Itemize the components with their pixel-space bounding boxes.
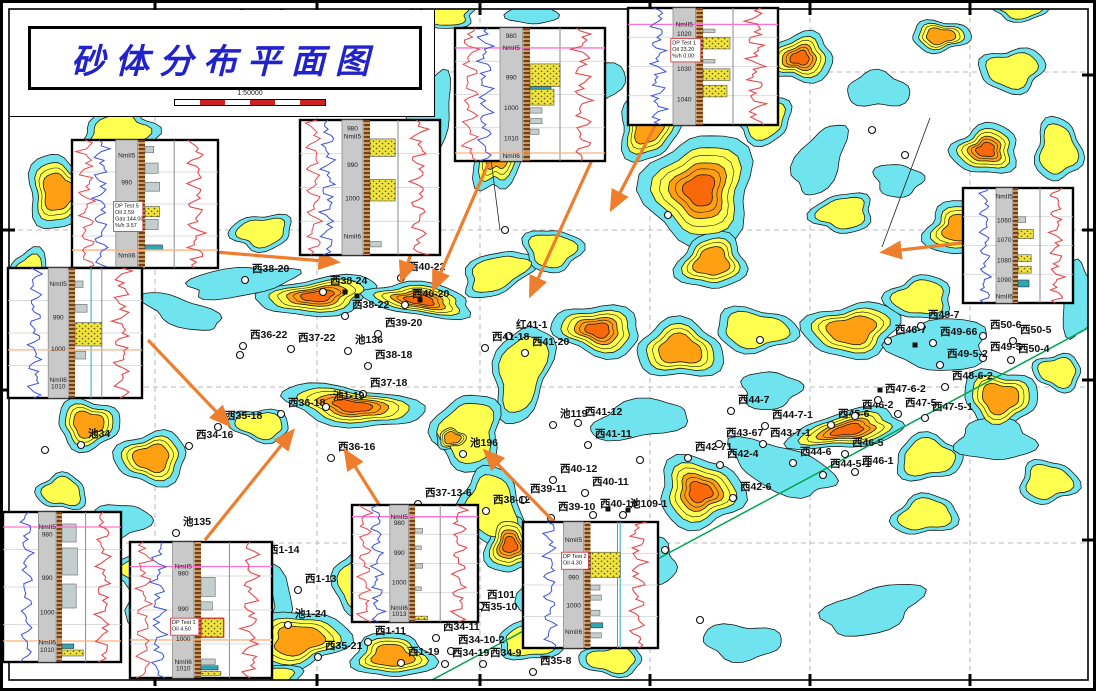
well-label: 西42-4	[727, 448, 759, 460]
well-symbol[interactable]	[728, 408, 735, 415]
sand-bar	[201, 602, 212, 610]
well-symbol[interactable]	[930, 340, 937, 347]
sand-bar	[370, 242, 381, 247]
log-panel[interactable]: 980NmII59901000NmII6	[300, 120, 440, 255]
depth-label: 1000	[51, 346, 66, 353]
well-symbol[interactable]	[918, 323, 925, 330]
sand-bar	[703, 85, 727, 97]
depth-label: NmII5	[39, 524, 57, 531]
well-symbol[interactable]	[365, 363, 372, 370]
frame-tick	[3, 229, 15, 232]
well-label: 西40-20	[412, 288, 450, 300]
depth-label: 1010	[176, 666, 191, 673]
well-symbol[interactable]	[790, 460, 797, 467]
well-label: 西43-7-1	[770, 427, 811, 439]
depth-label: 1013	[392, 611, 407, 618]
well-symbol-filled[interactable]	[913, 343, 918, 348]
well-label: 西101	[487, 589, 515, 601]
well-label: 西50-4	[1018, 343, 1050, 355]
well-symbol[interactable]	[902, 152, 909, 159]
depth-track	[996, 188, 1013, 303]
sand-bar	[530, 129, 539, 134]
depth-label: 1000	[566, 602, 581, 609]
depth-label: 1020	[677, 31, 692, 38]
frame-tick	[479, 3, 482, 15]
well-label: 西46-5	[852, 437, 884, 449]
well-label: 池136	[355, 333, 383, 346]
well-symbol[interactable]	[697, 617, 704, 624]
well-symbol[interactable]	[173, 530, 180, 537]
sand-bar	[703, 37, 730, 49]
test-note-line: Oil 2.59	[115, 210, 134, 216]
well-symbol[interactable]	[575, 420, 582, 427]
sand-bar	[530, 108, 542, 113]
well-label: 西38-18	[375, 349, 413, 361]
depth-label: 980	[178, 570, 189, 577]
well-symbol[interactable]	[665, 212, 672, 219]
log-panel[interactable]: NmII59901000NmII6DP Test 2Oil 4.30	[523, 522, 658, 648]
well-symbol[interactable]	[522, 350, 529, 357]
sand-bar	[1018, 255, 1031, 262]
well-label: 西41-12	[585, 406, 623, 418]
depth-label: 1010	[51, 384, 66, 391]
log-panel[interactable]: NmII59809901000NmII61010DP Test 1Oil 4.5…	[130, 542, 272, 678]
well-symbol[interactable]	[895, 411, 902, 418]
depth-label: NmII6	[118, 252, 136, 259]
depth-label: 1010	[40, 647, 55, 654]
well-symbol[interactable]	[460, 451, 467, 458]
log-panel[interactable]: NmII5990NmII6DP Test 5Oil 2.59Gas:144.00…	[72, 140, 218, 268]
well-label: 池196	[470, 436, 498, 449]
well-symbol[interactable]	[980, 333, 987, 340]
well-label: 西39-10	[558, 501, 596, 513]
well-label: 西38-24	[330, 275, 368, 287]
well-label: 西40-11	[592, 476, 629, 488]
sand-bar	[145, 163, 158, 173]
frame-tick	[1082, 74, 1094, 77]
well-symbol[interactable]	[590, 512, 597, 519]
lithology-column	[409, 505, 415, 622]
sand-bar	[370, 179, 395, 201]
well-label: 西44-6	[800, 446, 832, 458]
log-panel[interactable]: NmII59809901000NmII61010	[3, 512, 121, 662]
depth-label: NmII6	[344, 233, 362, 240]
sand-bar	[62, 584, 76, 608]
sand-bar	[1018, 217, 1026, 223]
well-symbol[interactable]	[550, 422, 557, 429]
frame-tick	[809, 3, 812, 15]
test-note-line: %/h 3.57	[115, 223, 137, 229]
well-label: 西35-18	[225, 410, 263, 422]
sand-bar	[201, 577, 215, 596]
well-symbol[interactable]	[637, 457, 644, 464]
sand-bar	[62, 650, 83, 656]
well-symbol[interactable]	[717, 462, 724, 469]
sand-bar	[703, 29, 715, 33]
well-label: 西41-20	[532, 336, 570, 348]
sand-bar	[201, 618, 224, 637]
depth-label: 1030	[677, 66, 692, 73]
well-symbol[interactable]	[483, 508, 490, 515]
well-symbol[interactable]	[922, 415, 929, 422]
depth-label: 1070	[997, 237, 1012, 244]
depth-label: 990	[53, 315, 64, 322]
depth-label: NmII6	[996, 293, 1014, 300]
well-label: 西41-11	[595, 428, 632, 440]
log-panel[interactable]: 980NmII599010001010NmII6	[455, 28, 605, 161]
depth-label: 990	[347, 162, 358, 169]
log-panel[interactable]: NmII59809901000NmII61013	[352, 505, 478, 622]
well-symbol[interactable]	[442, 661, 449, 668]
depth-label: NmII5	[676, 22, 694, 29]
test-note-line: Oil 4.30	[563, 561, 582, 567]
well-symbol[interactable]	[480, 661, 487, 668]
frame-tick	[649, 674, 652, 686]
depth-label: 990	[178, 606, 189, 613]
well-symbol[interactable]	[842, 451, 849, 458]
well-label: 西48-6-2	[952, 370, 993, 382]
well-label: 西35-10	[480, 601, 518, 613]
well-label: 西34-9	[490, 647, 522, 659]
sand-bar	[591, 633, 602, 638]
well-label: 西38-22	[352, 299, 390, 311]
title-block: 砂体分布平面图 1:50000	[10, 10, 435, 117]
well-symbol[interactable]	[42, 447, 49, 454]
depth-label: 990	[42, 575, 53, 582]
well-symbol[interactable]	[620, 512, 627, 519]
depth-label: 980	[506, 33, 517, 40]
well-label: 西36-22	[250, 329, 288, 341]
well-symbol-filled[interactable]	[355, 294, 360, 299]
well-label: 西44-7-1	[772, 409, 813, 421]
sand-bar	[62, 548, 77, 575]
depth-label: NmII5	[996, 193, 1014, 200]
sand-bar	[530, 87, 551, 90]
well-label: 西42-6	[740, 481, 772, 493]
map-title: 砂体分布平面图	[71, 34, 379, 83]
well-symbol[interactable]	[482, 345, 489, 352]
well-symbol-filled[interactable]	[343, 290, 348, 295]
sand-bar	[415, 587, 421, 591]
well-symbol[interactable]	[530, 669, 537, 676]
well-label: 西34-10-2	[458, 634, 505, 646]
log-panel[interactable]: NmII59901000NmII61010	[8, 268, 142, 398]
well-symbol[interactable]	[585, 442, 592, 449]
well-symbol[interactable]	[402, 302, 409, 309]
scale-bar	[174, 99, 326, 106]
depth-label: NmII5	[503, 45, 521, 52]
well-label: 西37-18	[370, 377, 408, 389]
scale-label: 1:50000	[160, 90, 340, 98]
well-symbol[interactable]	[662, 547, 669, 554]
sand-bar	[1018, 229, 1033, 238]
well-label: 西40-12	[560, 463, 598, 475]
sand-bar	[415, 616, 428, 620]
well-label: 池34	[88, 427, 110, 440]
sand-bar	[703, 59, 715, 63]
sand-bar	[145, 182, 160, 191]
test-note-line: Oil 4.50	[172, 627, 191, 633]
sand-bar	[530, 64, 560, 87]
sand-bar	[591, 595, 602, 600]
depth-label: 990	[394, 550, 405, 557]
test-note-line: Gas:144.00	[115, 216, 143, 222]
well-symbol[interactable]	[242, 277, 249, 284]
test-note-line: DP Test 5	[115, 203, 139, 209]
frame-tick	[1082, 539, 1094, 542]
depth-label: 980	[347, 125, 358, 132]
well-symbol[interactable]	[582, 490, 589, 497]
sand-bar	[201, 671, 221, 675]
depth-label: 1080	[997, 258, 1012, 265]
well-symbol[interactable]	[875, 397, 882, 404]
sand-bar	[201, 666, 218, 670]
map-canvas: 西38-20 西38-24 西38-22 西39-20 西40-22 西40-2…	[0, 0, 1096, 691]
lithology-column	[584, 522, 590, 648]
sand-bar	[75, 281, 83, 288]
sand-bar	[145, 219, 158, 229]
well-label: 池1-24	[295, 607, 327, 620]
frame-tick	[809, 674, 812, 686]
well-label: 西38-20	[252, 263, 290, 275]
lithology-column	[1013, 188, 1018, 303]
frame-tick	[1082, 379, 1094, 382]
depth-label: NmII5	[565, 537, 583, 544]
sand-bar	[703, 69, 730, 81]
well-label: 西49-5-2	[947, 348, 988, 360]
well-symbol[interactable]	[685, 455, 692, 462]
depth-label: NmII5	[344, 133, 362, 140]
well-symbol[interactable]	[716, 441, 723, 448]
well-symbol[interactable]	[852, 469, 859, 476]
sand-bar	[1018, 280, 1029, 287]
well-label: 西37-13-6	[425, 487, 472, 499]
well-symbol[interactable]	[342, 313, 349, 320]
well-symbol[interactable]	[365, 639, 372, 646]
depth-label: 1000	[345, 196, 360, 203]
sand-bar	[145, 207, 160, 217]
well-symbol[interactable]	[186, 443, 193, 450]
well-symbol[interactable]	[237, 352, 244, 359]
frame-tick	[316, 674, 319, 686]
depth-label: NmII5	[118, 153, 136, 160]
well-label: 池109-1	[630, 497, 668, 510]
frame-tick	[1082, 229, 1094, 232]
sand-bar	[530, 118, 542, 123]
well-label: 西49-7	[928, 309, 960, 321]
well-label: 西50-6	[990, 319, 1022, 331]
depth-label: 1000	[392, 579, 407, 586]
well-label: 西41-18	[492, 331, 530, 343]
test-note-line: DP Test 1	[172, 620, 196, 626]
test-note-line: DP Test 2	[563, 554, 587, 560]
well-symbol[interactable]	[1008, 357, 1015, 364]
well-label: 西34-16	[196, 429, 234, 441]
well-label: 池135	[183, 515, 211, 528]
depth-label: NmII6	[39, 640, 57, 647]
lithology-column	[57, 512, 62, 662]
depth-label: 990	[506, 74, 517, 81]
well-label: 西36-18	[288, 397, 326, 409]
sand-bar	[415, 564, 423, 569]
well-symbol[interactable]	[433, 635, 440, 642]
depth-label: 990	[568, 575, 579, 582]
well-label: 西35-21	[325, 640, 363, 652]
well-symbol[interactable]	[320, 289, 327, 296]
depth-label: NmII6	[503, 153, 521, 160]
sand-bar	[591, 623, 603, 628]
well-symbol[interactable]	[757, 337, 764, 344]
well-label: 西1-19	[408, 646, 440, 658]
well-label: 西49-66	[940, 326, 978, 338]
sand-bar	[415, 546, 421, 550]
well-label: 西49-5	[990, 341, 1022, 353]
depth-label: NmII6	[565, 629, 583, 636]
well-symbol[interactable]	[240, 343, 247, 350]
well-label: 西39-11	[530, 483, 567, 495]
well-label: 西37-22	[298, 332, 336, 344]
well-symbol[interactable]	[885, 338, 892, 345]
well-label: 西35-8	[540, 655, 572, 667]
sand-bar	[145, 146, 154, 152]
well-symbol[interactable]	[852, 413, 859, 420]
well-symbol[interactable]	[295, 587, 302, 594]
well-symbol[interactable]	[502, 227, 509, 234]
lithology-column	[69, 268, 75, 398]
depth-label: 1010	[504, 136, 519, 143]
well-label: 西39-20	[385, 317, 423, 329]
sand-bar	[62, 644, 74, 649]
well-symbol[interactable]	[278, 411, 285, 418]
well-label: 西36-16	[338, 441, 376, 453]
log-panel[interactable]: NmII5102010301040DP Test 1Oil 23.20%/h 0…	[628, 8, 778, 125]
depth-label: 1090	[997, 277, 1012, 284]
depth-label: 980	[42, 532, 53, 539]
well-symbol[interactable]	[345, 348, 352, 355]
sand-bar	[75, 351, 86, 359]
sand-bar	[591, 610, 600, 615]
well-symbol[interactable]	[323, 404, 330, 411]
sand-bar	[75, 323, 102, 346]
well-symbol[interactable]	[869, 127, 876, 134]
well-label: 西46-1	[862, 455, 894, 467]
well-symbol[interactable]	[315, 654, 322, 661]
frame-tick	[969, 674, 972, 686]
well-label: 西1-13	[305, 573, 337, 585]
well-symbol-filled[interactable]	[878, 388, 883, 393]
well-label: 西43-67	[726, 427, 764, 439]
sand-bar	[1018, 266, 1031, 273]
well-symbol[interactable]	[398, 660, 405, 667]
well-symbol[interactable]	[942, 384, 949, 391]
sand-bar	[591, 552, 621, 577]
depth-label: 1000	[40, 610, 55, 617]
frame-tick	[969, 3, 972, 15]
well-label: 西38-12	[493, 494, 531, 506]
sand-bar	[145, 245, 163, 250]
well-label: 池119	[560, 407, 588, 420]
well-label: 西47-6-2	[885, 383, 926, 395]
well-symbol[interactable]	[730, 495, 737, 502]
lithology-column	[195, 542, 201, 678]
well-label: 池1-19	[333, 389, 365, 402]
test-note-line: DP Test 1	[672, 40, 696, 46]
depth-label: 1060	[997, 217, 1012, 224]
frame-tick	[479, 674, 482, 686]
test-note-line: Oil 23.20	[672, 47, 694, 53]
well-symbol[interactable]	[820, 472, 827, 479]
depth-label: 1000	[504, 105, 519, 112]
log-panel[interactable]: NmII51060107010801090NmII6	[963, 188, 1073, 303]
well-symbol[interactable]	[78, 442, 85, 449]
sand-bar	[415, 528, 423, 533]
well-symbol[interactable]	[762, 423, 769, 430]
test-note-line: %/h 0.00	[672, 53, 694, 59]
lithology-column	[364, 120, 370, 255]
sand-bar	[75, 304, 87, 312]
well-symbol[interactable]	[760, 441, 767, 448]
well-label: 西34-19	[452, 647, 490, 659]
depth-label: 1040	[677, 96, 692, 103]
well-symbol[interactable]	[828, 422, 835, 429]
depth-label: 1000	[176, 636, 191, 643]
well-label: 红41-1	[516, 318, 548, 331]
well-symbol[interactable]	[937, 362, 944, 369]
well-label: 西44-7	[738, 394, 770, 406]
well-symbol[interactable]	[288, 346, 295, 353]
well-label: 西47-5-1	[932, 401, 973, 413]
depth-label: 990	[121, 179, 132, 186]
well-symbol[interactable]	[285, 622, 292, 629]
scale-bar-group: 1:50000	[160, 90, 340, 106]
lithology-column	[696, 8, 703, 125]
well-label: 西1-11	[375, 625, 406, 637]
well-label: 西50-5	[1020, 324, 1052, 336]
sand-bar	[530, 89, 554, 105]
sand-bar	[591, 585, 600, 590]
sand-bar	[370, 139, 395, 157]
sand-bar	[201, 659, 215, 664]
well-symbol[interactable]	[328, 455, 335, 462]
depth-label: 980	[394, 520, 405, 527]
depth-label: NmII5	[50, 281, 68, 288]
title-box: 砂体分布平面图	[28, 26, 422, 90]
